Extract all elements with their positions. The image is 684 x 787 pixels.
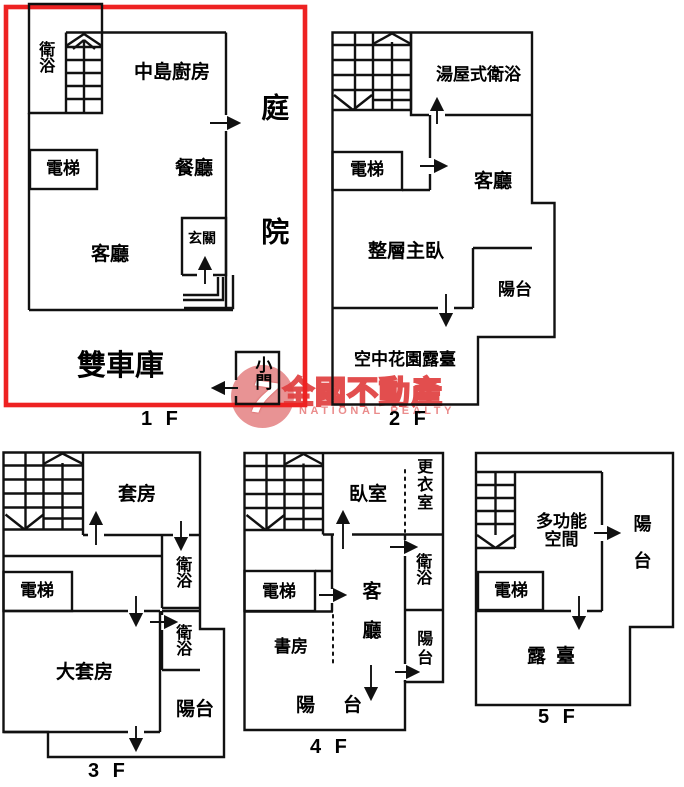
room-label-closet-4f: 更衣室 [414, 458, 431, 512]
room-label-bath-4f: 衛浴 [413, 553, 430, 585]
door-arrows-3f [96, 513, 181, 750]
floor-title-4f: 4 F [310, 737, 351, 759]
room-label-elevator-5f: 電梯 [494, 582, 528, 600]
stairs-4f-icon [245, 453, 324, 535]
room-label-multi-5f: 多功能空間 [533, 513, 590, 550]
room-label-small-door-1f: 小門 [252, 356, 270, 390]
room-label-master-2f: 整層主臥 [368, 242, 444, 263]
floor-2f-walls [333, 33, 555, 405]
door-arrows-2f [420, 99, 446, 325]
room-label-suite-3f: 套房 [118, 485, 156, 506]
room-label-balcony-bottom-4f: 陽台 [296, 696, 390, 717]
room-label-elevator-2f: 電梯 [350, 161, 384, 179]
room-label-bath-2f: 湯屋式衛浴 [436, 66, 521, 84]
room-label-bath2-3f: 衛浴 [173, 624, 190, 656]
room-label-elevator-1f: 電梯 [46, 160, 80, 178]
stairs-3f-icon [4, 453, 84, 536]
room-label-elevator-4f: 電梯 [262, 583, 296, 601]
room-label-living-1f: 客廳 [91, 245, 129, 266]
room-label-garage-1f: 雙車庫 [77, 351, 164, 382]
room-label-balcony-2f: 陽台 [498, 281, 532, 299]
floorplan-page: 7 全國不動產 NATIONAL REALTY [0, 0, 684, 787]
room-label-entry-1f: 玄關 [188, 231, 216, 246]
room-label-balcony-5f: 陽台 [631, 514, 650, 588]
room-label-study-4f: 書房 [274, 638, 308, 656]
room-label-roof-terrace-5f: 露臺 [527, 647, 585, 668]
floor-title-1f: 1 F [141, 409, 182, 431]
room-label-courtyard-1f: 庭院 [258, 93, 288, 341]
room-label-big-suite-3f: 大套房 [56, 663, 113, 684]
floor-title-5f: 5 F [538, 707, 579, 729]
floor-title-3f: 3 F [88, 761, 129, 783]
stairs-5f-icon [476, 472, 515, 548]
stairs-2f-icon [333, 33, 412, 111]
room-label-bedroom-4f: 臥室 [349, 485, 387, 506]
room-label-balcony-side-4f: 陽台 [414, 630, 431, 668]
floor-title-2f: 2 F [389, 409, 430, 431]
floor-2f [333, 33, 555, 405]
room-label-bath-1f: 衛浴 [36, 41, 53, 73]
entry-1f-box [182, 218, 226, 275]
room-label-bath1-3f: 衛浴 [173, 556, 190, 588]
room-label-elevator-3f: 電梯 [20, 582, 54, 600]
stairs-1f-icon [66, 33, 102, 114]
room-label-kitchen-1f: 中島廚房 [134, 63, 210, 84]
room-label-living-4f: 客廳 [359, 581, 380, 659]
room-label-living-2f: 客廳 [474, 172, 512, 193]
room-label-dining-1f: 餐廳 [175, 159, 213, 180]
room-label-terrace-2f: 空中花園露臺 [354, 351, 456, 369]
room-label-balcony-3f: 陽台 [176, 700, 214, 721]
